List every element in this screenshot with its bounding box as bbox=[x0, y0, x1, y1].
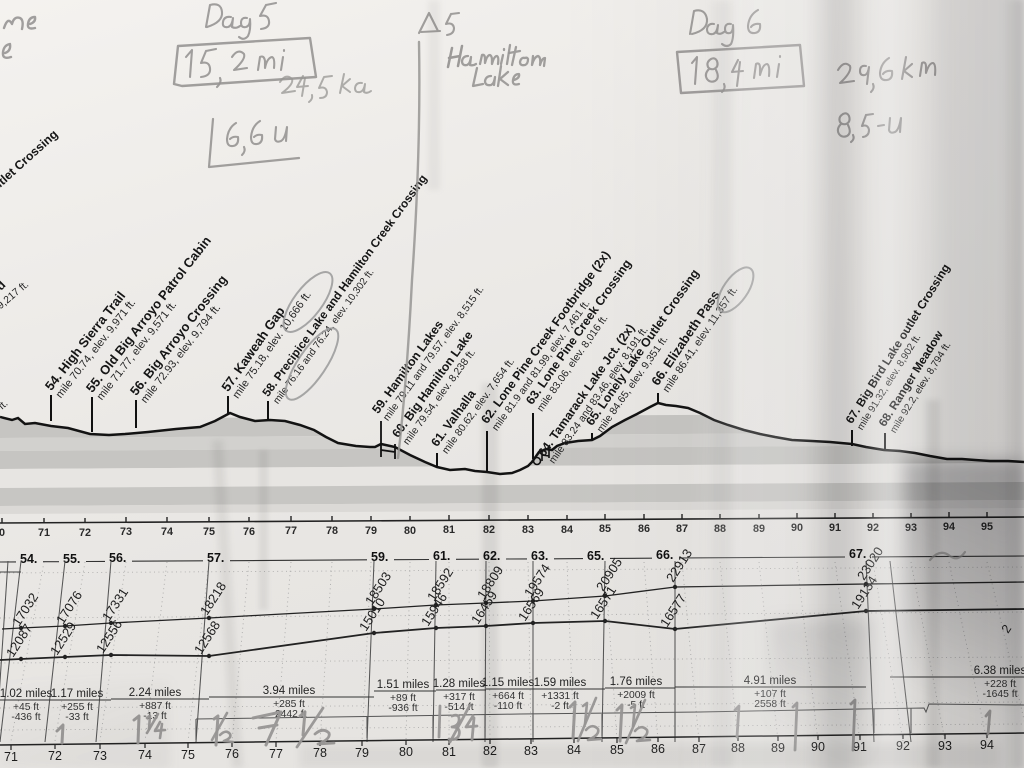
svg-text:80: 80 bbox=[404, 525, 416, 537]
svg-text:94: 94 bbox=[980, 738, 994, 752]
svg-text:84: 84 bbox=[561, 524, 573, 536]
svg-text:87: 87 bbox=[676, 523, 688, 535]
svg-text:55.: 55. bbox=[63, 552, 80, 566]
svg-text:74: 74 bbox=[138, 748, 152, 762]
svg-text:16459: 16459 bbox=[468, 588, 500, 626]
svg-text:91: 91 bbox=[829, 522, 841, 534]
svg-text:81: 81 bbox=[443, 524, 455, 536]
svg-text:1.28 miles: 1.28 miles bbox=[433, 678, 486, 690]
svg-text:85: 85 bbox=[610, 743, 624, 757]
svg-text:-436 ft: -436 ft bbox=[11, 712, 40, 723]
svg-text:88: 88 bbox=[731, 741, 745, 755]
svg-text:91: 91 bbox=[853, 740, 867, 754]
svg-text:12087: 12087 bbox=[3, 621, 35, 659]
svg-text:76: 76 bbox=[243, 526, 255, 538]
svg-text:1.15 miles: 1.15 miles bbox=[482, 677, 535, 689]
svg-text:3.94 miles: 3.94 miles bbox=[263, 685, 316, 697]
svg-text:82: 82 bbox=[483, 744, 497, 758]
svg-text:92: 92 bbox=[867, 522, 879, 534]
svg-text:79: 79 bbox=[355, 746, 369, 760]
svg-text:d: d bbox=[0, 278, 8, 293]
svg-text:90: 90 bbox=[811, 740, 825, 754]
svg-text:90: 90 bbox=[791, 522, 803, 534]
svg-text:15010: 15010 bbox=[356, 595, 388, 633]
svg-text:16577: 16577 bbox=[657, 591, 689, 629]
svg-text:2.24 miles: 2.24 miles bbox=[129, 687, 182, 699]
svg-text:61.: 61. bbox=[433, 549, 450, 563]
svg-text:93: 93 bbox=[905, 522, 917, 534]
svg-text:1.59 miles: 1.59 miles bbox=[534, 677, 587, 689]
svg-text:0: 0 bbox=[0, 527, 5, 539]
svg-text:73: 73 bbox=[93, 749, 107, 763]
svg-text:-33 ft: -33 ft bbox=[65, 712, 89, 723]
svg-text:56.: 56. bbox=[109, 551, 126, 565]
svg-text:77: 77 bbox=[285, 525, 297, 537]
svg-text:Outlet Crossing: Outlet Crossing bbox=[0, 127, 61, 199]
svg-text:76: 76 bbox=[225, 747, 239, 761]
svg-text:92: 92 bbox=[896, 739, 910, 753]
svg-text:72: 72 bbox=[79, 527, 91, 539]
svg-text:6.38 miles: 6.38 miles bbox=[974, 665, 1024, 677]
svg-text:83: 83 bbox=[524, 744, 538, 758]
svg-text:94: 94 bbox=[943, 521, 955, 533]
svg-text:95: 95 bbox=[981, 521, 993, 533]
svg-text:78: 78 bbox=[313, 746, 327, 760]
svg-text:2: 2 bbox=[999, 622, 1015, 635]
svg-text:75: 75 bbox=[181, 748, 195, 762]
svg-text:57.: 57. bbox=[207, 551, 224, 565]
svg-text:19134: 19134 bbox=[848, 573, 880, 611]
svg-text:78: 78 bbox=[326, 525, 338, 537]
svg-text:12568: 12568 bbox=[191, 618, 223, 656]
svg-text:1.17 miles: 1.17 miles bbox=[51, 688, 104, 700]
svg-text:77: 77 bbox=[269, 747, 283, 761]
svg-text:83: 83 bbox=[522, 524, 534, 536]
svg-text:17331: 17331 bbox=[99, 585, 131, 623]
svg-text:-110 ft: -110 ft bbox=[494, 701, 523, 712]
svg-text:4.91 miles: 4.91 miles bbox=[744, 675, 797, 687]
svg-text:16571: 16571 bbox=[587, 583, 619, 621]
svg-text:2558 ft: 2558 ft bbox=[754, 699, 786, 710]
svg-text:71: 71 bbox=[38, 527, 50, 539]
svg-text:88: 88 bbox=[714, 523, 726, 535]
svg-text:12556: 12556 bbox=[93, 617, 125, 655]
svg-text:ft.: ft. bbox=[0, 398, 10, 412]
svg-text:-1645 ft: -1645 ft bbox=[983, 689, 1018, 700]
svg-text:93: 93 bbox=[938, 739, 952, 753]
svg-text:81: 81 bbox=[442, 745, 456, 759]
svg-text:82: 82 bbox=[483, 524, 495, 536]
svg-text:66.: 66. bbox=[656, 548, 673, 562]
svg-text:16569: 16569 bbox=[515, 585, 547, 623]
svg-text:-2 ft: -2 ft bbox=[551, 701, 569, 712]
svg-text:1.51 miles: 1.51 miles bbox=[377, 679, 430, 691]
svg-text:18218: 18218 bbox=[197, 579, 229, 617]
svg-text:54.: 54. bbox=[20, 552, 37, 566]
svg-text:89: 89 bbox=[771, 741, 785, 755]
svg-text:86: 86 bbox=[638, 523, 650, 535]
svg-text:86: 86 bbox=[651, 742, 665, 756]
svg-text:79: 79 bbox=[365, 525, 377, 537]
svg-text:62.: 62. bbox=[483, 549, 500, 563]
svg-text:71: 71 bbox=[4, 750, 18, 764]
svg-text:74: 74 bbox=[161, 526, 173, 538]
svg-text:72: 72 bbox=[48, 749, 62, 763]
svg-text:80: 80 bbox=[399, 745, 413, 759]
svg-text:73: 73 bbox=[120, 526, 132, 538]
svg-text:85: 85 bbox=[599, 523, 611, 535]
svg-text:12529: 12529 bbox=[47, 619, 79, 657]
svg-text:-936 ft: -936 ft bbox=[388, 703, 417, 714]
svg-text:75: 75 bbox=[203, 526, 215, 538]
svg-text:89: 89 bbox=[753, 523, 765, 535]
svg-text:84: 84 bbox=[567, 743, 581, 757]
svg-text:1.76 miles: 1.76 miles bbox=[610, 676, 663, 688]
svg-text:87: 87 bbox=[692, 742, 706, 756]
svg-text:1.02 miles: 1.02 miles bbox=[0, 688, 52, 700]
svg-text:15946: 15946 bbox=[418, 590, 450, 628]
svg-text:65.: 65. bbox=[587, 549, 604, 563]
